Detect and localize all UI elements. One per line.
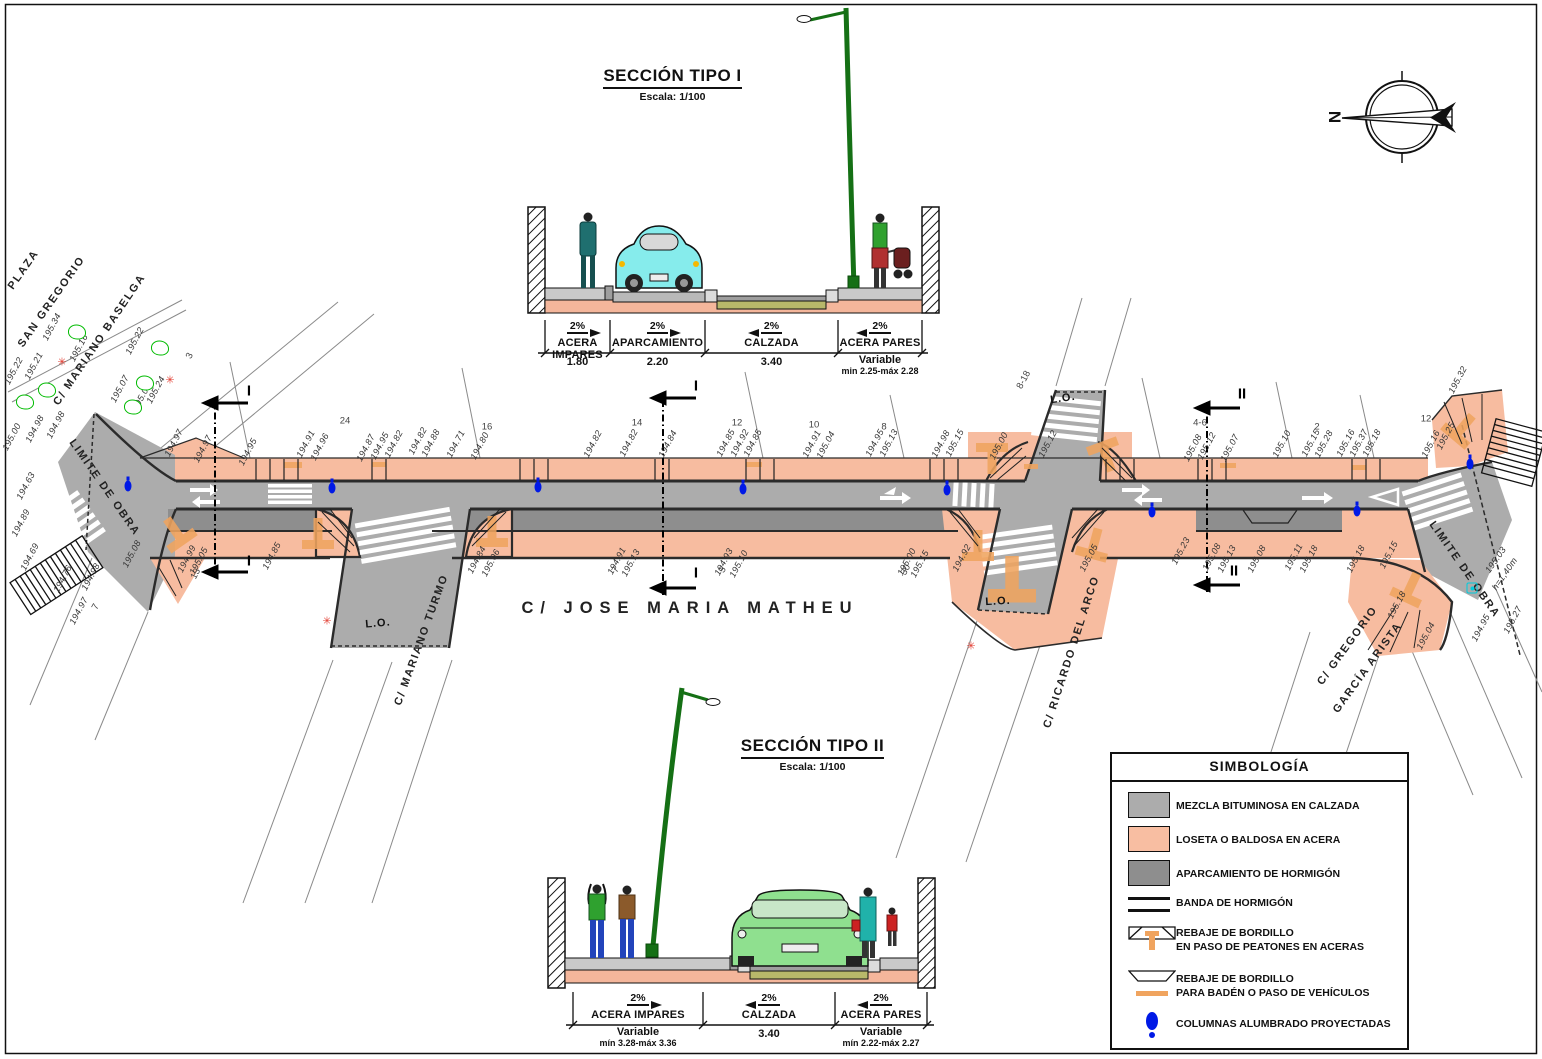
street-lamp-column — [125, 481, 132, 492]
label-lo: L.O. — [365, 617, 391, 630]
legend-label: COLUMNAS ALUMBRADO PROYECTADAS — [1176, 1017, 1391, 1031]
pedestrian-stroller — [872, 214, 913, 289]
street-lamp-column — [1354, 506, 1361, 517]
legend-box: SIMBOLOGÍA MEZCLA BITUMINOSA EN CALZADA … — [1110, 752, 1409, 1050]
tree-icon — [136, 376, 154, 391]
car-golf — [732, 890, 868, 966]
pedestrian-child — [887, 908, 897, 947]
section-1-drawing — [528, 8, 939, 357]
segment-dim: 3.40 — [703, 1028, 835, 1040]
segment-label: APARCAMIENTO — [610, 337, 705, 349]
lamp-post — [646, 688, 720, 957]
section-cut-mark-1: I — [694, 379, 698, 394]
legend-label: APARCAMIENTO DE HORMIGÓN — [1176, 867, 1340, 881]
car-beetle — [616, 226, 702, 292]
hatched-wall — [922, 207, 939, 313]
segment-dim: Variable — [838, 354, 922, 366]
section-cut-mark-1: I — [694, 566, 698, 581]
section-2-title-block: SECCIÓN TIPO II Escala: 1/100 — [715, 736, 910, 773]
label-lo: L.O. — [985, 596, 1011, 608]
curb-cut-vehicle-swatch — [1128, 969, 1176, 1003]
segment-dim: 3.40 — [705, 356, 838, 368]
street-lamp-column — [535, 482, 542, 493]
segment-label: ACERA IMPARES — [573, 1009, 703, 1021]
pedestrian-man — [580, 213, 596, 289]
label-num: 24 — [340, 416, 351, 426]
legend-title: SIMBOLOGÍA — [1112, 754, 1407, 782]
hatched-wall — [528, 207, 545, 313]
street-lamp-column — [1467, 459, 1474, 470]
slope-label: 2% — [870, 992, 891, 1006]
segment-dim: 1.80 — [545, 356, 610, 368]
segment-label: ACERA PARES — [835, 1009, 927, 1021]
segment-dim: Variable — [835, 1026, 927, 1038]
hydrant-icon — [1467, 583, 1478, 594]
slope-label: 2% — [627, 992, 648, 1006]
north-compass-icon: N — [1325, 71, 1456, 163]
legend-label: BANDA DE HORMIGÓN — [1176, 896, 1293, 910]
slope-label: 2% — [567, 320, 588, 334]
hatched-wall — [918, 878, 935, 988]
legend-label: REBAJE DE BORDILLOPARA BADÉN O PASO DE V… — [1176, 972, 1370, 1000]
segment-label: CALZADA — [703, 1009, 835, 1021]
legend-label: LOSETA O BALDOSA EN ACERA — [1176, 833, 1340, 847]
segment-dim: Variable — [573, 1026, 703, 1038]
slope-label: 2% — [761, 320, 782, 334]
slope-label: 2% — [869, 320, 890, 334]
section-2-title: SECCIÓN TIPO II — [741, 736, 885, 759]
tree-icon — [124, 400, 142, 415]
segment-label: CALZADA — [705, 337, 838, 349]
section-cut-mark-2: II — [1230, 564, 1238, 579]
segment-dim: 2.20 — [610, 356, 705, 368]
street-label-jose-maria-matheu: C/ JOSE MARIA MATHEU — [521, 600, 858, 617]
section-1-title: SECCIÓN TIPO I — [603, 66, 741, 89]
tree-icon — [16, 395, 34, 410]
segment-dim-range: min 2.25-máx 2.28 — [838, 366, 922, 376]
sidewalk-swatch — [1128, 826, 1170, 852]
pedestrian-woman — [588, 884, 605, 958]
burst-icon — [322, 617, 331, 628]
north-letter: N — [1325, 111, 1344, 123]
burst-icon — [966, 642, 975, 653]
segment-dim-range: mín 3.28-máx 3.36 — [573, 1038, 703, 1048]
concrete-band-swatch — [1128, 897, 1170, 912]
section-1-scale: Escala: 1/100 — [575, 91, 770, 103]
label-num: 12 — [732, 418, 743, 428]
slope-label: 2% — [647, 320, 668, 334]
street-lamp-column — [740, 484, 747, 495]
street-lamp-column — [329, 483, 336, 494]
label-num: 12 — [1421, 414, 1432, 424]
parking-swatch — [1128, 860, 1170, 886]
section-2-scale: Escala: 1/100 — [715, 761, 910, 773]
section-cut-mark-1: I — [247, 554, 251, 569]
tree-icon — [38, 383, 56, 398]
legend-label: REBAJE DE BORDILLOEN PASO DE PEATONES EN… — [1176, 926, 1364, 954]
section-1-title-block: SECCIÓN TIPO I Escala: 1/100 — [575, 66, 770, 103]
lamp-post — [797, 8, 859, 288]
legend-label: MEZCLA BITUMINOSA EN CALZADA — [1176, 799, 1360, 813]
segment-dim-range: mín 2.22-máx 2.27 — [835, 1038, 927, 1048]
main-roadway — [120, 481, 1440, 509]
street-lamp-column — [1149, 507, 1156, 518]
burst-icon — [57, 358, 66, 369]
label-num: 14 — [632, 418, 643, 428]
tree-icon — [68, 325, 86, 340]
segment-label: ACERA PARES — [838, 337, 922, 349]
slope-label: 2% — [758, 992, 779, 1006]
hatched-wall — [548, 878, 565, 988]
burst-icon — [165, 376, 174, 387]
street-lamp-column — [944, 485, 951, 496]
road-swatch — [1128, 792, 1170, 818]
section-cut-mark-2: II — [1238, 387, 1246, 402]
lamp-column-swatch — [1128, 1009, 1176, 1039]
tree-icon — [151, 341, 169, 356]
section-cut-mark-1: I — [247, 384, 251, 399]
section-1-dimensions: 2% ACERA IMPARES 1.80 2% APARCAMIENTO 2.… — [545, 316, 922, 380]
section-2-dimensions: 2% ACERA IMPARES Variable mín 3.28-máx 3… — [573, 988, 927, 1052]
drawing-sheet: N PLAZASAN GREGORIOC/ MARIANO BASELGALIM… — [0, 0, 1542, 1059]
pedestrian-man — [619, 886, 635, 959]
curb-cut-pedestrian-swatch — [1128, 926, 1176, 954]
label-num: 4-6 — [1193, 418, 1207, 428]
